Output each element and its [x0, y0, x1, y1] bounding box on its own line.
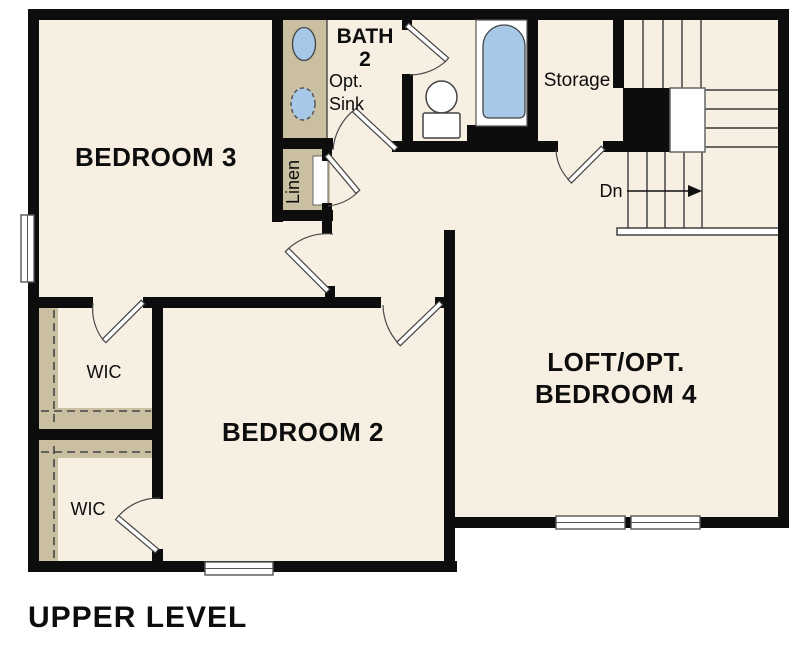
- toilet-tank: [423, 113, 460, 138]
- opt-sink-label-line1: Opt.: [329, 71, 363, 91]
- wall-linen-southeast-stub: [322, 203, 332, 234]
- wic-upper-inner: [58, 308, 152, 408]
- wall-storage-south-west: [538, 141, 558, 152]
- wall-wic-east-lower: [152, 440, 163, 499]
- wall-bedroom2-north: [143, 297, 381, 308]
- bedroom2-window: [205, 562, 273, 575]
- bath2-label-line2: 2: [359, 48, 371, 71]
- storage-label: Storage: [544, 70, 611, 91]
- tub-basin: [483, 25, 525, 118]
- wall-bedroom3-east: [272, 20, 283, 222]
- wall-wic-east-upper: [152, 297, 163, 440]
- bedroom3-label: BEDROOM 3: [75, 142, 237, 172]
- loft-window-left: [556, 516, 625, 529]
- wall-wic-divider: [28, 429, 163, 440]
- wall-tub-east: [527, 20, 538, 141]
- stair-landing-solid: [623, 88, 670, 152]
- stairs-down-label: Dn: [599, 181, 622, 201]
- wall-vanity-south: [272, 138, 333, 149]
- loft-label-line1: LOFT/OPT.: [547, 347, 684, 377]
- linen-label: Linen: [283, 160, 303, 204]
- stair-rail: [617, 228, 783, 235]
- bath2-label-line1: BATH: [337, 25, 394, 48]
- wall-exterior-top: [28, 9, 789, 20]
- optional-sink-basin: [291, 88, 315, 120]
- wic-upper-label: WIC: [87, 362, 122, 382]
- plan-title: UPPER LEVEL: [28, 601, 247, 634]
- wall-bath-south: [392, 141, 538, 152]
- bedroom3-window: [21, 215, 34, 282]
- floor-plan-page: BEDROOM 3 BATH 2 Opt. Sink Storage Linen…: [0, 0, 810, 648]
- wall-storage-east: [613, 20, 624, 88]
- wall-loft-west: [444, 230, 455, 572]
- wall-bedroom3-south-west: [28, 297, 93, 308]
- wall-exterior-right: [778, 9, 789, 528]
- loft-window-right: [631, 516, 700, 529]
- bathtub: [476, 20, 527, 126]
- wall-storage-south-east: [603, 141, 624, 152]
- wic-lower-label: WIC: [71, 499, 106, 519]
- loft-label-line2: BEDROOM 4: [535, 379, 697, 409]
- wall-exterior-left: [28, 9, 39, 572]
- floor-plan-drawing: BEDROOM 3 BATH 2 Opt. Sink Storage Linen…: [0, 0, 810, 648]
- opt-sink-label-line2: Sink: [329, 94, 365, 114]
- stair-landing-open: [670, 88, 705, 152]
- sink-basin: [293, 28, 316, 61]
- wall-toilet-west: [402, 74, 413, 141]
- linen-door-opening: [313, 156, 328, 205]
- bedroom2-label: BEDROOM 2: [222, 417, 384, 447]
- toilet-bowl: [426, 81, 457, 113]
